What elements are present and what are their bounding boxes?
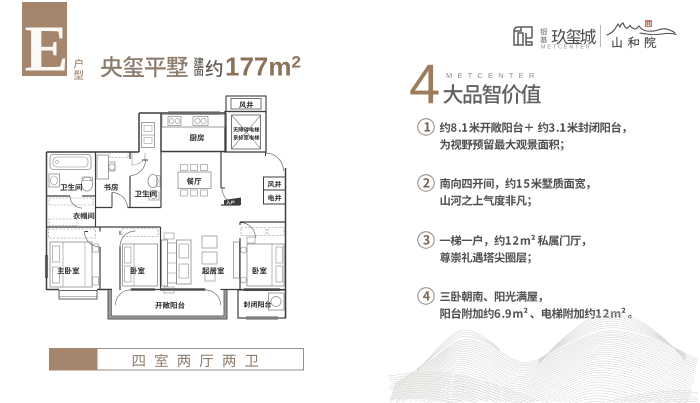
svg-text:E: E [24, 13, 68, 86]
svg-text:4: 4 [409, 52, 440, 115]
svg-text:METCENTER: METCENTER [446, 71, 539, 80]
svg-text:177m2: 177m2 [225, 52, 301, 82]
svg-text:METCENTER: METCENTER [541, 45, 592, 51]
svg-text:Ш: Ш [646, 22, 651, 28]
